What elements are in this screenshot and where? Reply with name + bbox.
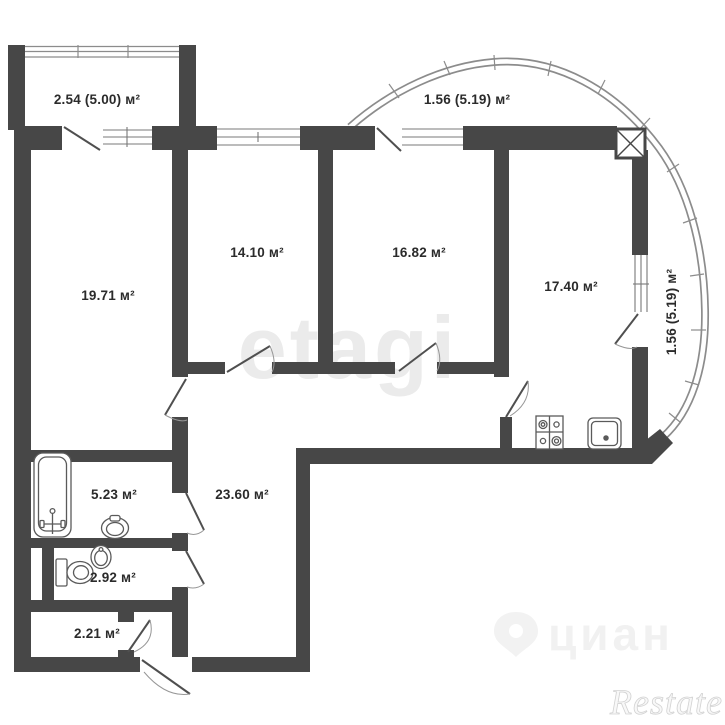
- wall-top: [152, 126, 217, 150]
- watermark-restate: Restate: [609, 682, 723, 722]
- room-label-bedroom-2: 16.82 м²: [392, 245, 446, 260]
- stove-icon: [536, 416, 563, 449]
- room-label-bathroom: 5.23 м²: [91, 487, 137, 502]
- floor-plan-image: etagi циан Restate: [0, 0, 725, 725]
- wall-left: [14, 126, 31, 657]
- room-label-balcony-right: 1.56 (5.19) м²: [664, 269, 679, 356]
- toilet-icon: [56, 559, 93, 586]
- wall-balcony-right: [179, 45, 196, 130]
- wall-balcony-left: [8, 45, 25, 130]
- wall-top: [463, 126, 617, 150]
- window-kitchen: [633, 255, 649, 312]
- wall-top: [300, 126, 375, 150]
- room-label-bedroom-1: 14.10 м²: [230, 245, 284, 260]
- ventilation-shaft-icon: [616, 129, 645, 158]
- room-label-balcony-top-right: 1.56 (5.19) м²: [424, 92, 511, 107]
- kitchen-sink-icon: [588, 418, 621, 449]
- room-label-hallway: 23.60 м²: [215, 487, 269, 502]
- bathtub-icon: [34, 453, 71, 537]
- room-label-toilet: 2.92 м²: [90, 570, 136, 585]
- floor-plan-screenshot: etagi циан Restate: [0, 0, 725, 725]
- room-label-balcony-bottom: 2.21 м²: [74, 626, 120, 641]
- room-label-balcony-top-left: 2.54 (5.00) м²: [54, 92, 141, 107]
- room-label-living-room: 19.71 м²: [81, 288, 135, 303]
- watermark-cian: циан: [548, 608, 674, 660]
- room-label-kitchen: 17.40 м²: [544, 279, 598, 294]
- wash-basin-icon: [91, 546, 111, 569]
- window-living-room: [103, 127, 152, 147]
